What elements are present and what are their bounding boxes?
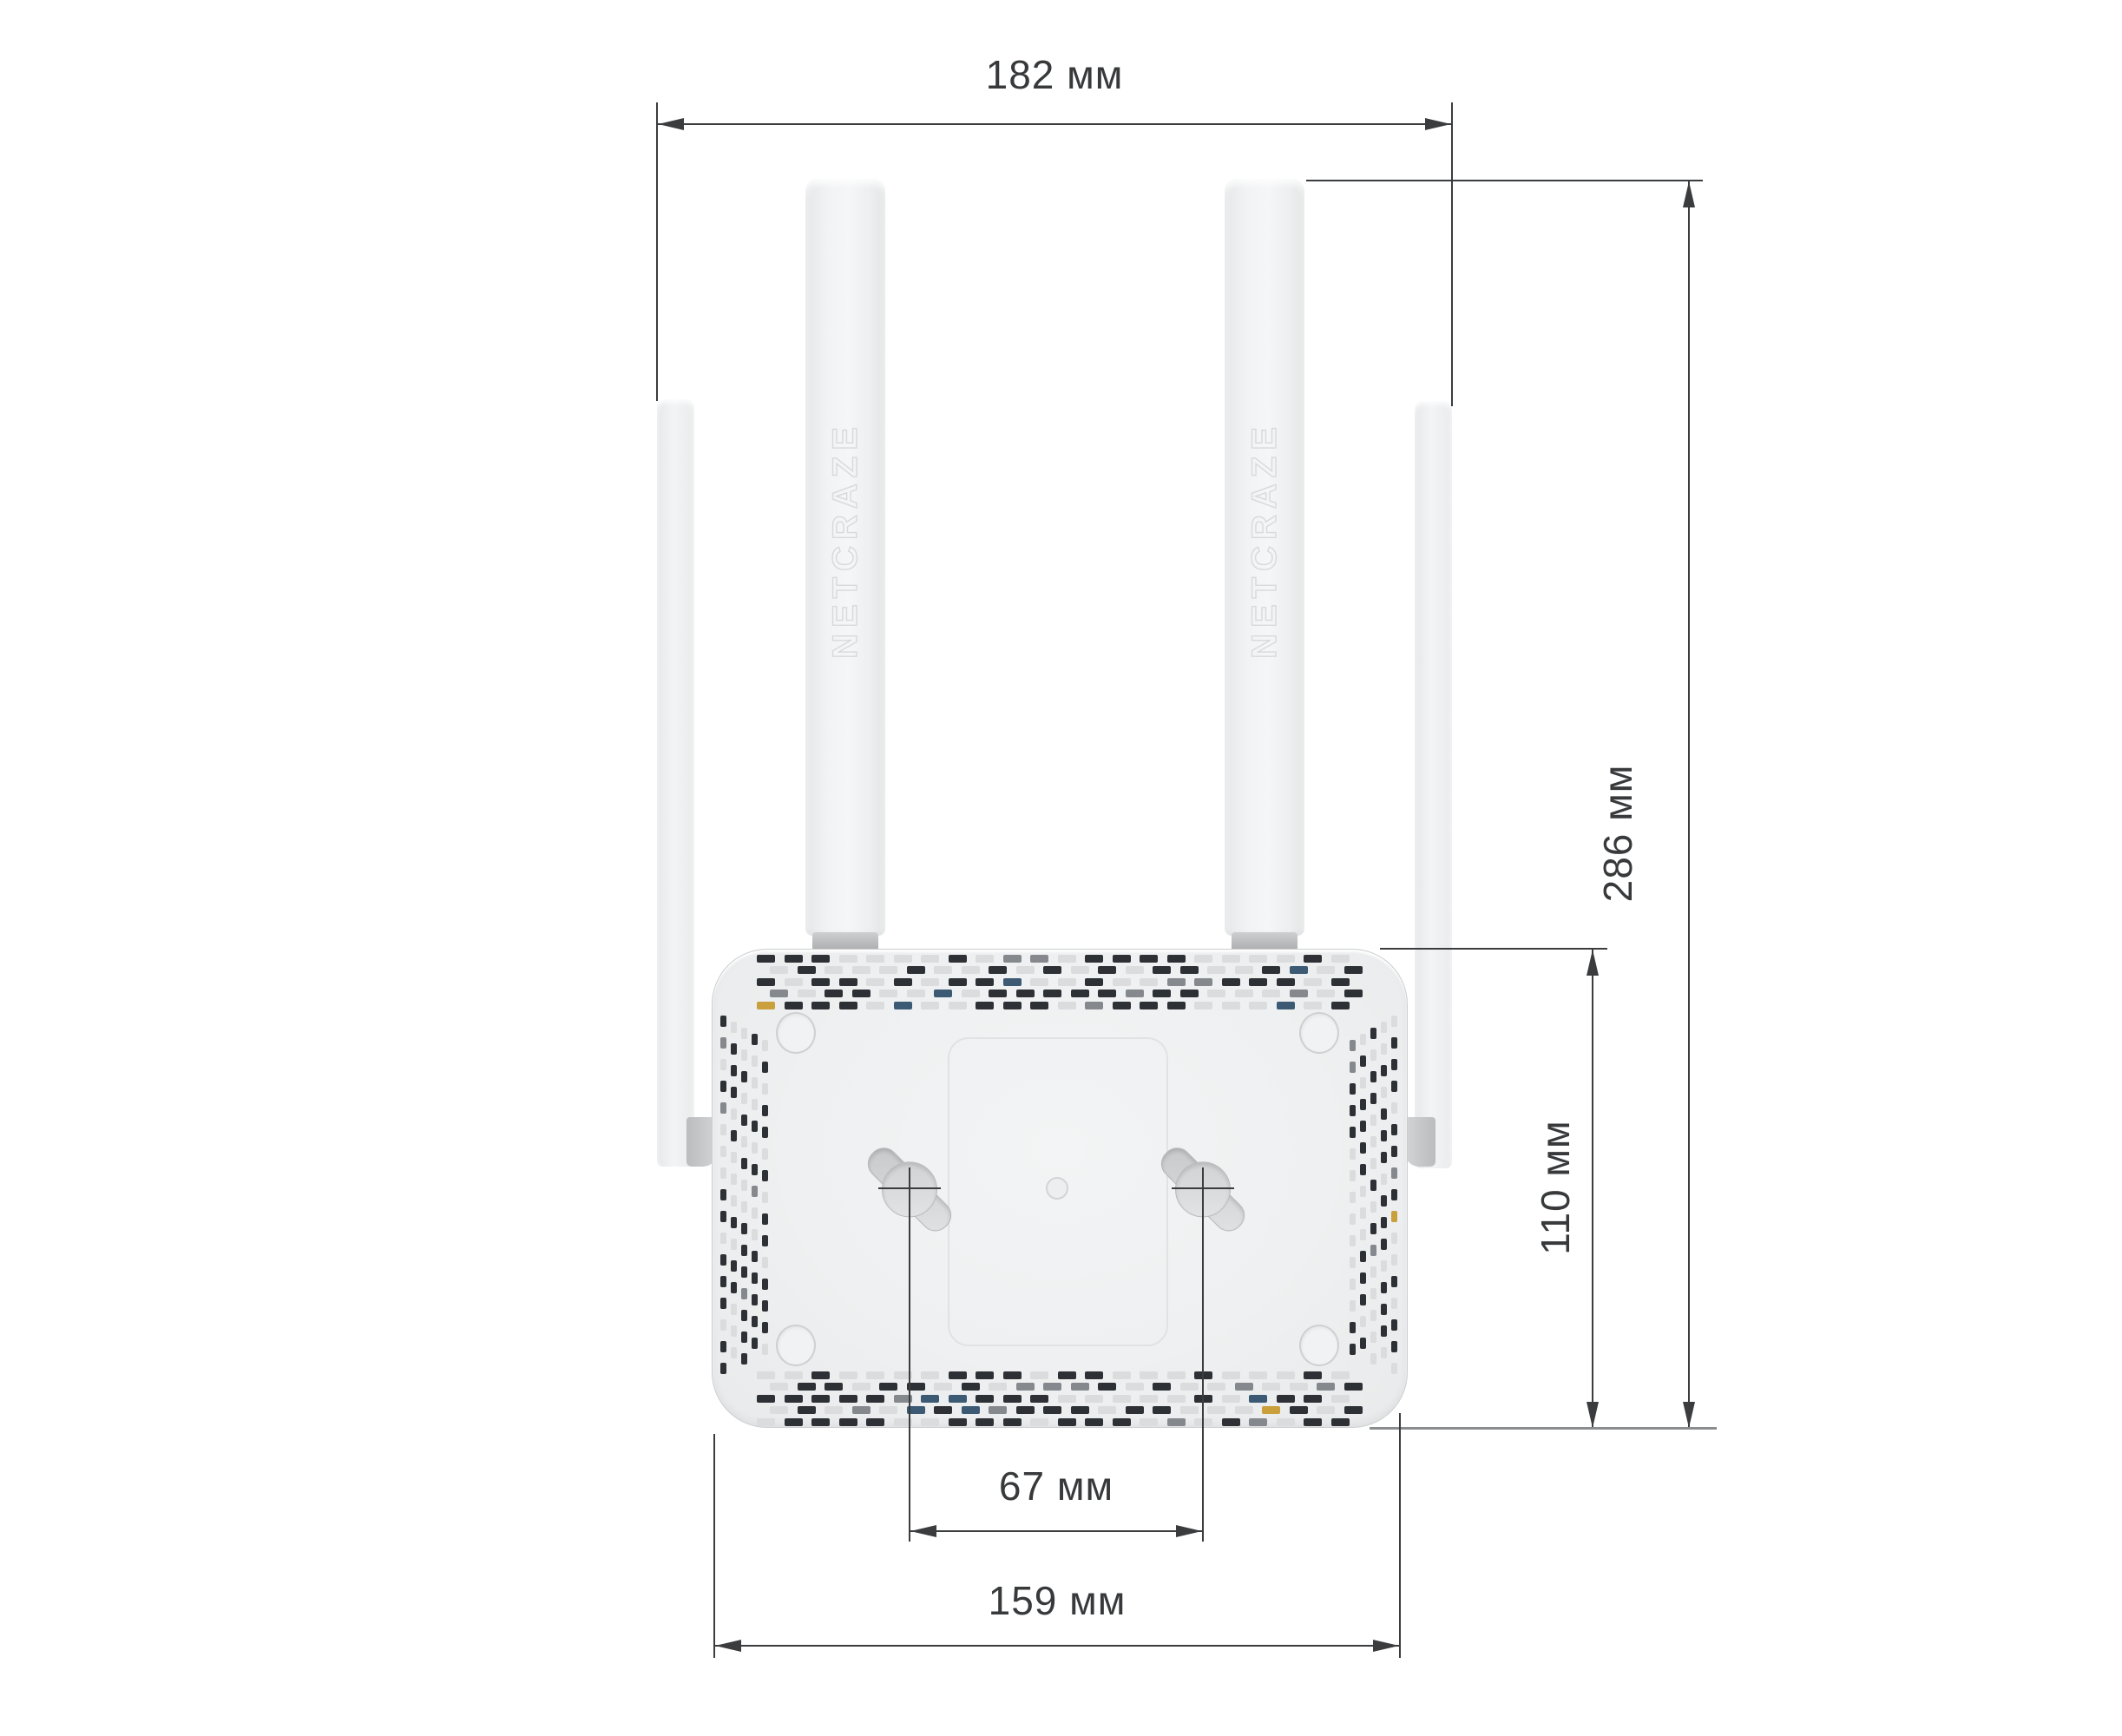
dim-286-line: [1688, 181, 1690, 1429]
rubber-foot-bottom-right: [1299, 1325, 1339, 1366]
dim-159-arrow-right: [1373, 1640, 1399, 1652]
dim-182-arrow-left: [658, 118, 684, 130]
dim-286-arrow-down: [1683, 1402, 1695, 1428]
dim-159-extension-right: [1399, 1413, 1401, 1658]
dim-110-extension-top: [1380, 948, 1607, 950]
center-pin-hole: [1046, 1177, 1068, 1200]
dim-67-line: [910, 1530, 1203, 1532]
dim-182-line: [657, 123, 1452, 125]
dim-110-arrow-up: [1587, 950, 1599, 976]
dim-67-extension-left: [909, 1167, 910, 1542]
dim-159-extension-left: [713, 1434, 715, 1658]
brand-embossed-right: NETCRAZE: [1247, 384, 1282, 696]
dim-182-extension-left: [656, 102, 658, 401]
dim-159-label: 159 мм: [927, 1578, 1187, 1623]
dim-110-label: 110 мм: [1533, 1057, 1578, 1318]
dim-286-label: 286 мм: [1595, 703, 1640, 963]
antenna-short-left: [657, 399, 694, 1167]
dim-159-line: [714, 1645, 1400, 1647]
dim-110-arrow-down: [1587, 1402, 1599, 1428]
dim-182-extension-right: [1451, 102, 1453, 406]
dim-159-arrow-left: [715, 1640, 741, 1652]
rubber-foot-bottom-left: [776, 1325, 816, 1366]
dim-67-arrow-left: [910, 1525, 936, 1537]
dim-286-arrow-up: [1683, 181, 1695, 207]
brand-embossed-left: NETCRAZE: [828, 384, 863, 696]
dim-110-line: [1592, 949, 1593, 1429]
dim-bottom-extension: [1370, 1427, 1717, 1430]
router-dimension-diagram: NETCRAZE NETCRAZE 182 мм 286 мм 110 мм 6…: [0, 0, 2122, 1736]
dim-67-arrow-right: [1176, 1525, 1202, 1537]
dim-286-extension-top: [1306, 180, 1703, 181]
antenna-short-right: [1415, 401, 1452, 1168]
dim-67-label: 67 мм: [926, 1463, 1186, 1509]
dim-182-label: 182 мм: [924, 52, 1185, 97]
rubber-foot-top-right: [1299, 1012, 1339, 1054]
antenna-short-right-connector: [1405, 1117, 1435, 1167]
rubber-foot-top-left: [776, 1012, 816, 1054]
dim-67-extension-right: [1202, 1167, 1204, 1542]
dim-182-arrow-right: [1425, 118, 1451, 130]
